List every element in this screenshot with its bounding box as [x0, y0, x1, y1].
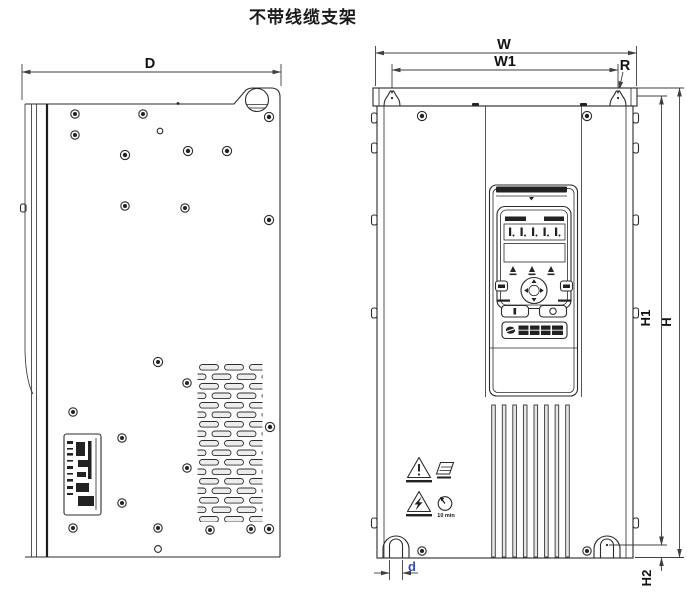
- nameplate-label: [64, 434, 101, 515]
- dimension-label-slot-diameter: d: [408, 559, 416, 574]
- dimension-label-bottom-offset: H2: [639, 570, 654, 587]
- stop-key: [540, 306, 567, 318]
- run-key: [502, 306, 529, 318]
- dimension-label-radius: R: [620, 58, 631, 74]
- side-mount-hole: [246, 89, 269, 112]
- dimension-drawing: 不带线缆支架 D: [0, 0, 687, 601]
- front-view: W W1 R: [372, 37, 685, 586]
- dimension-depth: D: [22, 56, 281, 100]
- display-brand-bar: [505, 217, 526, 222]
- display-model-bar: [544, 217, 564, 222]
- technical-drawing-page: 不带线缆支架 D: [0, 0, 687, 601]
- vent-grille: [198, 363, 263, 522]
- keypad-panel: [496, 207, 573, 318]
- side-view: D: [21, 56, 282, 557]
- page-title: 不带线缆支架: [249, 7, 357, 27]
- dimension-label-mount-width: W1: [494, 54, 516, 70]
- mounting-flange: [373, 88, 637, 106]
- dimension-label-width: W: [497, 37, 511, 53]
- wait-time-label: 10 min: [437, 513, 455, 519]
- dimension-slot-diameter: d: [374, 559, 418, 580]
- dimension-radius: R: [619, 58, 631, 90]
- brand-logo: [502, 322, 567, 339]
- through-hole: [155, 546, 162, 553]
- dimension-label-depth: D: [145, 56, 155, 72]
- seven-segment-display: [504, 224, 565, 240]
- lcd-area: [504, 244, 565, 263]
- through-hole: [157, 128, 163, 134]
- dimension-label-mount-height: H1: [638, 310, 653, 327]
